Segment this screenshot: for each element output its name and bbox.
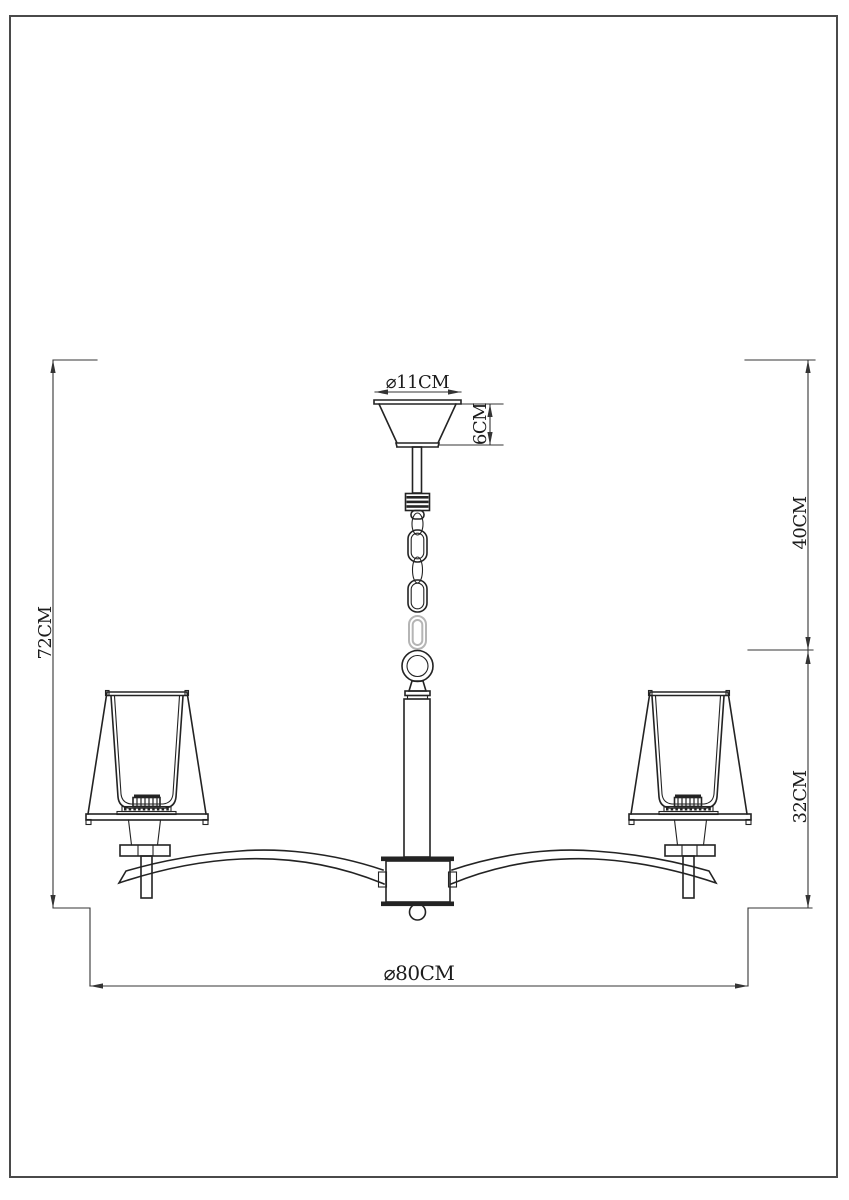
- hanging-ring: [402, 651, 433, 700]
- left-arm: [119, 850, 384, 884]
- left-light: [86, 691, 208, 899]
- left-glass-shade: [111, 696, 183, 809]
- suspension: [402, 447, 433, 699]
- rod-coupler: [406, 494, 430, 520]
- hub-body: [386, 861, 450, 902]
- ring-base: [409, 681, 426, 691]
- label-overall-height: 72CM: [35, 606, 56, 659]
- hub-top-plate: [381, 857, 454, 862]
- open-hook-link-faint: [409, 616, 426, 649]
- label-suspension-length: 40CM: [790, 496, 811, 549]
- left-candle-holder: [120, 820, 170, 898]
- label-overall-diameter: ⌀80CM: [384, 961, 455, 985]
- ball-finial: [410, 904, 426, 920]
- chain-link-small: [412, 513, 423, 535]
- hub-bottom-plate: [381, 902, 454, 907]
- label-body-height: 32CM: [790, 770, 811, 823]
- center-column: [404, 699, 430, 857]
- right-candle-holder: [665, 820, 715, 898]
- collar-plate: [405, 691, 430, 696]
- right-light: [629, 691, 751, 899]
- canopy-cone: [379, 404, 456, 447]
- dimension-lines: [50, 360, 815, 989]
- chandelier-dimension-diagram: ⌀11CM 6CM 40CM 72CM 32CM ⌀80CM: [0, 0, 849, 1200]
- label-canopy-diameter: ⌀11CM: [386, 372, 450, 393]
- canopy-top-plate: [374, 400, 461, 404]
- drawing-sheet: ⌀11CM 6CM 40CM 72CM 32CM ⌀80CM: [0, 0, 849, 1200]
- right-candle-rod: [683, 856, 694, 898]
- left-candle-rod: [141, 856, 152, 898]
- central-body: [379, 699, 457, 920]
- ceiling-canopy: [374, 400, 461, 447]
- dim-right-sections: [745, 360, 815, 986]
- drop-rod: [413, 447, 422, 493]
- right-arm: [451, 850, 716, 884]
- label-canopy-height: 6CM: [470, 403, 491, 445]
- chain-link-small: [413, 557, 423, 583]
- dim-overall-height: [50, 360, 97, 986]
- chain: [408, 513, 427, 649]
- arms: [119, 850, 716, 884]
- right-glass-shade: [652, 696, 724, 809]
